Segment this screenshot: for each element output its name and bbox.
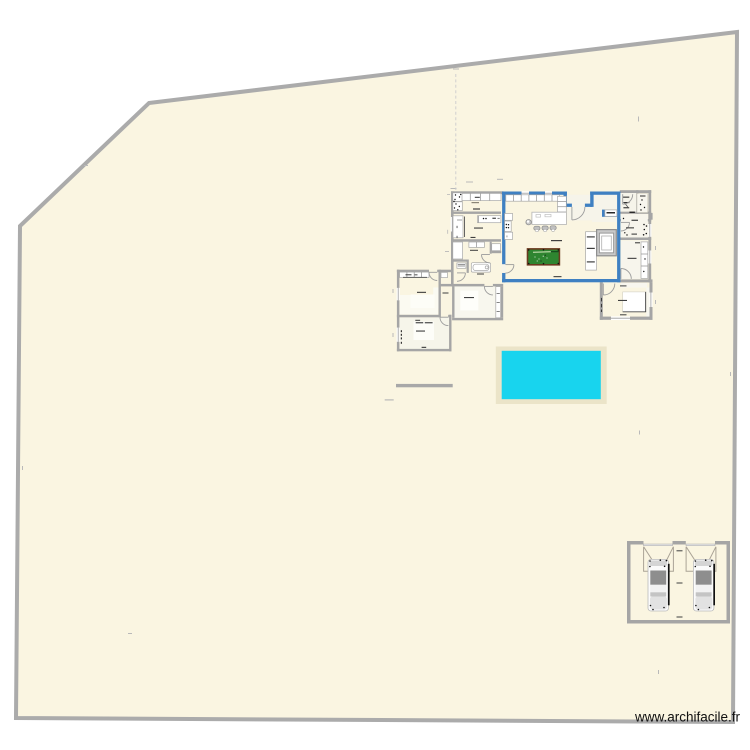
svg-text:www.archifacile.fr: www.archifacile.fr <box>634 710 741 725</box>
